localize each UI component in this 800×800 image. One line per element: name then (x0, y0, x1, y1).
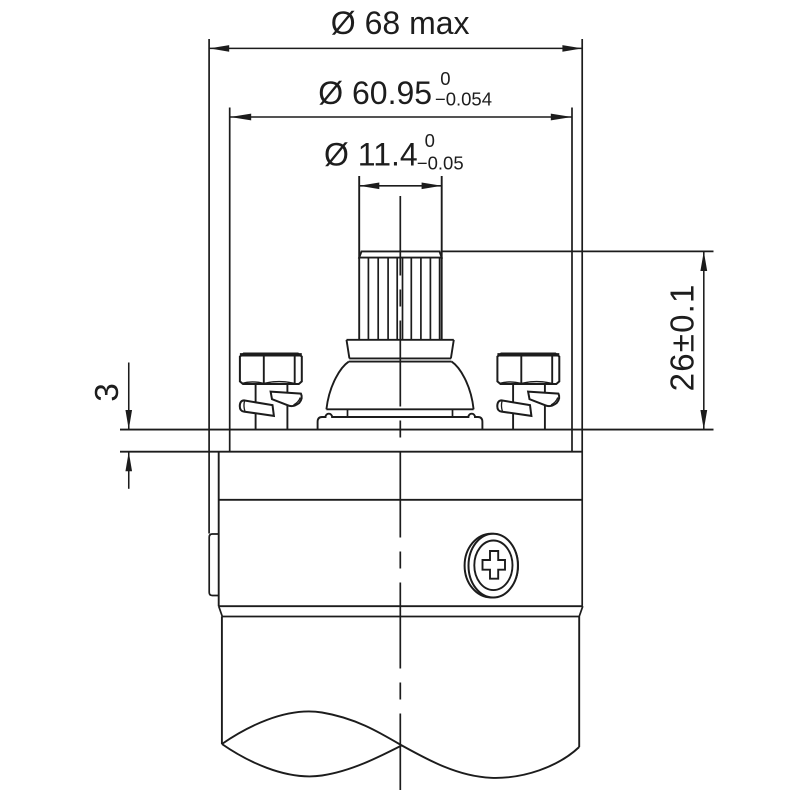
svg-text:0: 0 (440, 68, 450, 89)
svg-text:3: 3 (89, 383, 126, 402)
svg-text:Ø 60.95: Ø 60.95 (318, 75, 432, 111)
svg-text:−0.054: −0.054 (435, 88, 492, 109)
svg-text:0: 0 (425, 130, 435, 151)
svg-text:Ø 68 max: Ø 68 max (331, 5, 470, 41)
svg-text:−0.05: −0.05 (417, 152, 464, 173)
svg-text:26±0.1: 26±0.1 (664, 283, 701, 391)
svg-text:Ø 11.4: Ø 11.4 (324, 136, 418, 172)
